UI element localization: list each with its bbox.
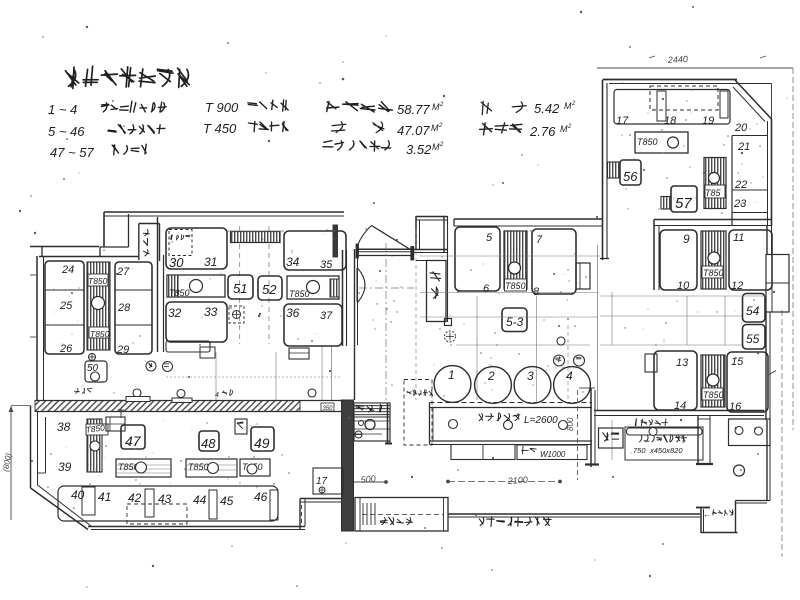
svg-text:32: 32 xyxy=(168,306,182,320)
svg-text:24: 24 xyxy=(61,264,74,276)
svg-text:20: 20 xyxy=(734,122,748,134)
svg-text:29: 29 xyxy=(116,344,129,356)
svg-text:19: 19 xyxy=(702,115,714,127)
svg-text:M: M xyxy=(432,142,440,152)
svg-text:4: 4 xyxy=(215,392,219,399)
svg-text:49: 49 xyxy=(254,435,270,451)
svg-text:x450x820: x450x820 xyxy=(649,446,683,455)
svg-text:47: 47 xyxy=(125,433,142,449)
svg-text:28: 28 xyxy=(117,302,131,314)
svg-text:T850: T850 xyxy=(505,281,526,291)
svg-text:7: 7 xyxy=(536,234,543,246)
svg-text:T850: T850 xyxy=(90,329,110,339)
svg-text:1 ~ 4: 1 ~ 4 xyxy=(48,102,77,117)
svg-text:17: 17 xyxy=(316,476,328,487)
svg-text:48: 48 xyxy=(201,436,216,451)
svg-text:27: 27 xyxy=(116,266,130,278)
svg-text:L=2600: L=2600 xyxy=(524,415,558,426)
svg-text:11: 11 xyxy=(733,232,744,244)
svg-text:2440: 2440 xyxy=(667,54,689,65)
svg-text:4: 4 xyxy=(566,369,573,383)
svg-text:38: 38 xyxy=(57,420,71,434)
svg-text:←: ← xyxy=(703,510,711,519)
svg-text:3: 3 xyxy=(527,369,534,383)
svg-text:35: 35 xyxy=(320,259,333,271)
svg-text:46: 46 xyxy=(254,490,268,504)
svg-text:45: 45 xyxy=(220,494,234,508)
svg-text:2100: 2100 xyxy=(506,475,528,486)
svg-text:43: 43 xyxy=(158,492,172,506)
svg-text:54: 54 xyxy=(746,304,760,318)
svg-text:6: 6 xyxy=(483,283,490,295)
svg-text:57: 57 xyxy=(675,195,692,212)
svg-text:2: 2 xyxy=(439,102,444,108)
svg-text:33: 33 xyxy=(204,305,218,319)
svg-text:2: 2 xyxy=(439,142,444,148)
svg-text:58.77: 58.77 xyxy=(397,102,430,117)
svg-text:18: 18 xyxy=(664,115,677,127)
svg-text:2: 2 xyxy=(487,369,495,383)
svg-text:9: 9 xyxy=(683,232,690,246)
svg-text:52: 52 xyxy=(262,282,277,297)
svg-text:15: 15 xyxy=(731,356,744,368)
svg-text:T 900: T 900 xyxy=(205,100,239,115)
svg-text:41: 41 xyxy=(98,490,111,504)
svg-text:51: 51 xyxy=(233,281,247,296)
svg-text:5.42: 5.42 xyxy=(534,101,560,116)
svg-text:T850: T850 xyxy=(289,289,310,299)
svg-text:T850: T850 xyxy=(703,390,724,400)
svg-text:25: 25 xyxy=(59,300,73,312)
svg-text:39: 39 xyxy=(58,460,72,474)
svg-text:750: 750 xyxy=(633,446,646,455)
svg-text:350: 350 xyxy=(323,406,334,412)
svg-text:M: M xyxy=(431,123,439,133)
svg-text:M: M xyxy=(432,102,440,112)
svg-text:22: 22 xyxy=(734,179,747,191)
svg-text:1: 1 xyxy=(448,368,455,382)
svg-text:5: 5 xyxy=(486,232,493,244)
svg-text:3.52: 3.52 xyxy=(406,142,432,157)
svg-text:2: 2 xyxy=(567,124,572,130)
svg-text:2: 2 xyxy=(571,101,576,107)
svg-text:23: 23 xyxy=(733,198,747,210)
svg-text:34: 34 xyxy=(286,255,300,269)
svg-text:2: 2 xyxy=(438,123,443,129)
svg-text:40: 40 xyxy=(71,488,85,502)
svg-text:47.07: 47.07 xyxy=(397,123,430,138)
svg-text:17: 17 xyxy=(616,115,629,127)
svg-text:31: 31 xyxy=(204,255,217,269)
svg-text:55: 55 xyxy=(746,332,760,346)
svg-text:M: M xyxy=(560,124,568,134)
svg-text:T850: T850 xyxy=(188,462,209,472)
svg-text:30: 30 xyxy=(169,255,184,270)
svg-text:44: 44 xyxy=(193,493,207,507)
svg-text:800: 800 xyxy=(566,417,575,431)
svg-text:W1000: W1000 xyxy=(540,450,566,459)
svg-text:T85: T85 xyxy=(705,188,722,198)
svg-text:5 ~ 46: 5 ~ 46 xyxy=(48,124,85,139)
svg-text:47 ~ 57: 47 ~ 57 xyxy=(50,145,95,160)
svg-text:2.76: 2.76 xyxy=(529,124,556,139)
svg-text:26: 26 xyxy=(59,343,73,355)
svg-text:10: 10 xyxy=(677,280,690,292)
svg-text:56: 56 xyxy=(623,169,638,184)
svg-text:T850: T850 xyxy=(88,276,108,286)
svg-text:T850: T850 xyxy=(703,268,724,278)
svg-text:42: 42 xyxy=(128,491,142,505)
svg-text:21: 21 xyxy=(737,141,750,153)
svg-text:T850: T850 xyxy=(169,288,190,298)
svg-text:500: 500 xyxy=(360,473,376,485)
svg-text:37: 37 xyxy=(320,310,333,322)
svg-text:T 450: T 450 xyxy=(203,121,237,136)
svg-text:12: 12 xyxy=(731,280,743,292)
svg-text:M: M xyxy=(564,101,572,111)
svg-text:T850: T850 xyxy=(637,137,658,147)
svg-text:36: 36 xyxy=(286,306,300,320)
svg-text:13: 13 xyxy=(676,357,689,369)
